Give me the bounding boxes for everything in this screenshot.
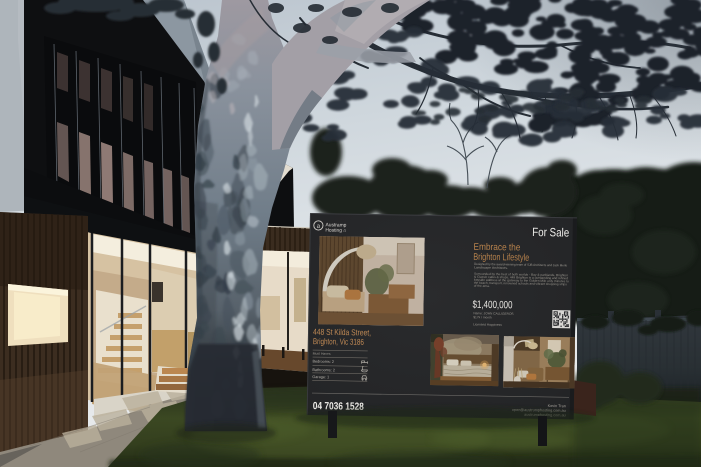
svg-text:Bathrooms: 2: Bathrooms: 2	[312, 368, 335, 372]
svg-text:Landscape Architects.: Landscape Architects.	[474, 265, 508, 270]
svg-text:Garage: 1: Garage: 1	[312, 375, 329, 379]
svg-text:$1,400,000: $1,400,000	[472, 299, 512, 312]
svg-text:Must Haves: Must Haves	[313, 352, 331, 356]
svg-text:$17k / month: $17k / month	[473, 315, 492, 319]
svg-text:For Sale: For Sale	[532, 225, 569, 240]
svg-text:Bedrooms: 2: Bedrooms: 2	[313, 360, 335, 364]
svg-text:Hosting ⌂: Hosting ⌂	[325, 228, 346, 234]
svg-text:Licensed Happiness: Licensed Happiness	[473, 322, 502, 326]
svg-text:Brighton, Vic 3186: Brighton, Vic 3186	[313, 336, 364, 347]
svg-text:of the area.: of the area.	[474, 284, 490, 288]
